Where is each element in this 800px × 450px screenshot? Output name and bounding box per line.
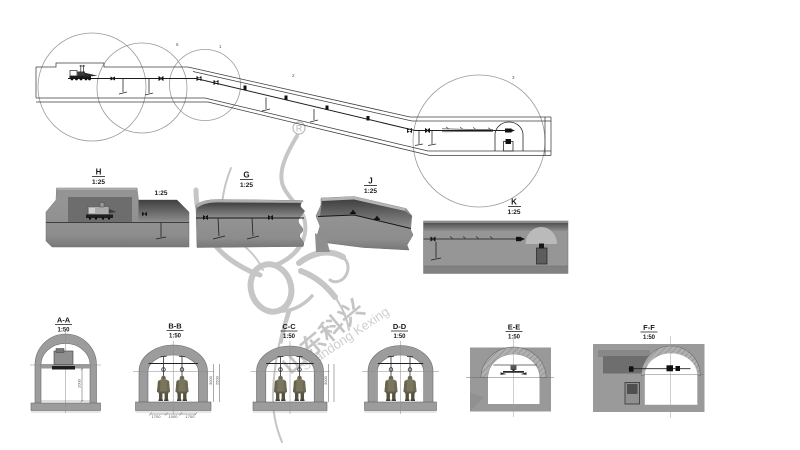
svg-text:1:25: 1:25: [507, 209, 520, 216]
svg-text:3000: 3000: [323, 375, 328, 385]
svg-text:3: 3: [512, 75, 515, 80]
svg-text:J: J: [368, 177, 372, 186]
svg-text:1: 1: [219, 44, 222, 49]
svg-text:D-D: D-D: [393, 322, 407, 331]
svg-text:1:25: 1:25: [92, 179, 105, 186]
svg-text:2500: 2500: [214, 375, 219, 385]
svg-text:1:50: 1:50: [57, 328, 70, 334]
svg-text:1:50: 1:50: [643, 335, 656, 341]
svg-text:A-A: A-A: [57, 316, 71, 325]
svg-text:3000: 3000: [208, 375, 213, 385]
svg-text:1:25: 1:25: [364, 188, 377, 195]
svg-text:E-E: E-E: [508, 323, 521, 332]
svg-text:6: 6: [176, 42, 179, 47]
svg-text:B-B: B-B: [168, 322, 182, 331]
svg-text:1:50: 1:50: [393, 334, 406, 340]
svg-text:R: R: [296, 124, 303, 134]
svg-text:1700: 1700: [186, 414, 196, 419]
svg-text:1700: 1700: [152, 414, 162, 419]
svg-text:2000: 2000: [77, 378, 82, 388]
svg-text:1:25: 1:25: [154, 190, 167, 197]
svg-text:1:50: 1:50: [169, 334, 182, 340]
svg-text:1:25: 1:25: [240, 182, 253, 189]
svg-text:F-F: F-F: [643, 323, 655, 332]
svg-text:1000: 1000: [169, 414, 179, 419]
svg-text:1:50: 1:50: [508, 335, 521, 341]
svg-text:H: H: [96, 168, 102, 177]
svg-text:C-C: C-C: [282, 322, 296, 331]
svg-text:2: 2: [292, 73, 295, 78]
svg-text:1:50: 1:50: [283, 334, 296, 340]
svg-text:K: K: [511, 198, 517, 207]
svg-text:G: G: [243, 171, 249, 180]
